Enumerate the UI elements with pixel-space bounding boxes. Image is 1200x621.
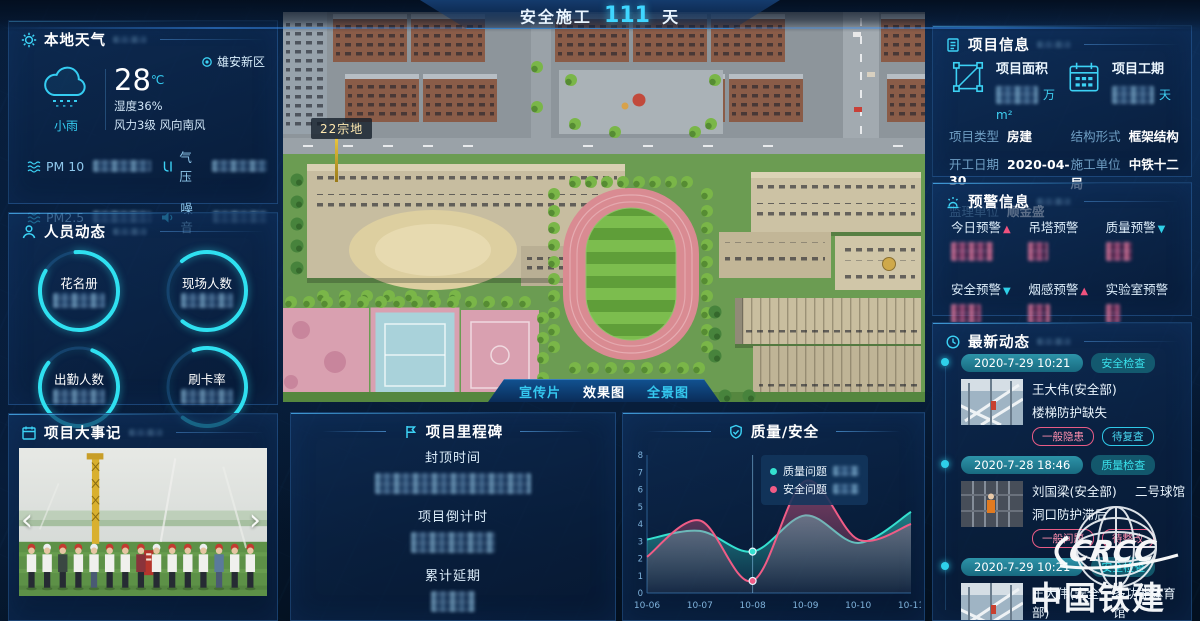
panel-title: 质量/安全	[751, 421, 819, 442]
header-decoration	[1037, 41, 1071, 48]
view-tabbar: 宣传片 效果图 全景图	[488, 379, 720, 402]
blurred-value	[1028, 304, 1050, 323]
blurred-value	[431, 591, 475, 612]
blurred-value	[951, 304, 981, 323]
trend-up-icon: ▲	[1080, 286, 1088, 297]
milestone-photo: ‹ ›	[19, 448, 267, 596]
blurred-value	[411, 532, 495, 553]
aerial-render	[283, 12, 925, 402]
safe-days-count: 111	[604, 3, 650, 28]
stat-project-area: 项目面积 万m²	[949, 58, 1065, 123]
svg-text:10-11: 10-11	[898, 601, 921, 611]
calendar-icon	[1065, 58, 1103, 100]
entry-issue: 楼梯防护缺失	[1032, 402, 1187, 421]
entry-person: 刘国梁(安全部)	[1032, 481, 1117, 500]
header-decoration	[129, 429, 163, 436]
blurred-value	[1106, 242, 1132, 261]
milestone-panel: 项目里程碑 封顶时间 项目倒计时 累计延期	[290, 412, 616, 621]
alert-smoke: 烟感预警▲	[1028, 279, 1105, 323]
dashboard: 安全施工 111 天 本地天气 雄安新区	[0, 0, 1200, 621]
feed-entry[interactable]: 2020-7-29 10:21 安全检查 王大伟(安全部)多功能体育馆 楼梯防护…	[933, 557, 1187, 620]
header-decoration	[1037, 198, 1071, 205]
personnel-panel: 人员动态 花名册 现场人数 出勤人数 刷卡率	[8, 212, 278, 405]
wind: 风力3级 风向南风	[114, 117, 205, 133]
entry-place: 多功能体育馆	[1113, 583, 1185, 620]
entry-photo	[961, 583, 1023, 620]
rain-cloud-icon	[37, 65, 95, 111]
svg-text:10-06: 10-06	[634, 601, 660, 611]
svg-text:3: 3	[638, 537, 643, 547]
timeline-dot-icon	[941, 460, 949, 468]
temperature: 28℃	[114, 65, 205, 95]
quality-safety-panel: 质量/安全 01234567810-0610-0710-0810-0910-10…	[622, 412, 925, 621]
alert-quality: 质量预警▼	[1106, 217, 1183, 261]
blurred-value	[181, 389, 233, 404]
tab-promo-video[interactable]: 宣传片	[519, 382, 561, 401]
svg-text:10-08: 10-08	[740, 601, 766, 611]
header-decoration	[113, 36, 147, 43]
blurred-value	[1112, 86, 1154, 104]
milestone-delay: 累计延期	[291, 565, 615, 612]
shield-check-icon	[728, 424, 744, 440]
panel-title: 项目里程碑	[426, 421, 504, 442]
project-info-panel: 项目信息 项目面积 万m² 项目工期 天	[932, 25, 1192, 177]
panel-title: 项目大事记	[44, 422, 122, 443]
entry-datetime: 2020-7-29 10:21	[961, 354, 1083, 372]
alert-crane: 吊塔预警	[1028, 217, 1105, 261]
status-tag: 待复查	[1102, 427, 1154, 446]
panel-title: 本地天气	[44, 29, 106, 50]
blurred-value	[53, 293, 105, 308]
weather-panel: 本地天气 雄安新区 小雨 28℃	[8, 20, 278, 204]
blurred-value	[181, 293, 233, 308]
person-icon	[21, 224, 37, 240]
alert-today: 今日预警▲	[951, 217, 1028, 261]
entry-issue: 洞口防护滞后	[1032, 504, 1187, 523]
tab-panorama[interactable]: 全景图	[647, 382, 689, 401]
svg-text:8: 8	[638, 451, 643, 461]
weather-condition: 小雨	[27, 65, 105, 134]
safety-series-label: 安全问题	[783, 481, 827, 497]
chart-tooltip: 质量问题 安全问题	[761, 455, 868, 505]
plot-marker[interactable]: 22宗地	[311, 118, 372, 139]
quality-series-label: 质量问题	[783, 463, 827, 479]
entry-datetime: 2020-7-29 10:21	[961, 558, 1083, 576]
entry-datetime: 2020-7-28 18:46	[961, 456, 1083, 474]
stat-project-duration: 项目工期 天	[1065, 58, 1181, 123]
status-tag: 待整改	[1102, 529, 1154, 548]
header-decoration	[113, 228, 147, 235]
svg-text:6: 6	[638, 486, 643, 496]
title-prefix: 安全施工	[520, 8, 592, 27]
events-panel: 项目大事记	[8, 413, 278, 621]
svg-text:10-07: 10-07	[687, 601, 713, 611]
header-decoration	[1037, 338, 1071, 345]
flag-icon	[403, 424, 419, 440]
svg-text:7: 7	[638, 468, 643, 478]
blurred-value	[93, 160, 151, 172]
tab-render-view[interactable]: 效果图	[583, 382, 625, 401]
entry-photo	[961, 379, 1023, 425]
entry-person: 王大伟(安全部)	[1032, 379, 1117, 398]
hazard-tag: 一般隐患	[1032, 427, 1094, 446]
svg-text:10-09: 10-09	[792, 601, 818, 611]
ring-onsite: 现场人数	[161, 245, 253, 337]
safety-legend-dot	[770, 486, 777, 493]
pressure-icon	[161, 160, 174, 173]
blurred-value	[212, 160, 267, 172]
trend-up-icon: ▲	[1003, 224, 1011, 235]
blurred-value	[375, 473, 531, 494]
ring-roster: 花名册	[33, 245, 125, 337]
alert-lab: 实验室预警	[1106, 279, 1183, 323]
sun-icon	[21, 32, 37, 48]
carousel-prev-button[interactable]: ‹	[21, 511, 33, 531]
entry-category-badge: 安全检查	[1091, 353, 1155, 373]
document-icon	[945, 37, 961, 53]
quality-legend-dot	[770, 468, 777, 475]
feed-entry[interactable]: 2020-7-29 10:21 安全检查 王大伟(安全部) 楼梯防护缺失 一般隐…	[933, 353, 1187, 446]
blurred-value	[833, 484, 859, 494]
svg-text:5: 5	[638, 503, 643, 513]
blurred-value	[951, 242, 993, 261]
blurred-value	[53, 389, 105, 404]
hazard-tag: 一般问题	[1032, 529, 1094, 548]
site-3d-view[interactable]: 22宗地 宣传片 效果图 全景图	[283, 12, 925, 402]
alerts-panel: 预警信息 今日预警▲ 吊塔预警 质量预警▼ 安全预警▼ 烟感预警▲ 实验室预警	[932, 182, 1192, 316]
metric-pm10: PM 10	[27, 147, 161, 185]
group-people	[26, 544, 255, 591]
milestone-topping-time: 封顶时间	[291, 447, 615, 494]
entry-category-badge: 安全检查	[1091, 557, 1155, 577]
trend-down-icon: ▼	[1158, 224, 1166, 235]
smog-icon	[27, 160, 41, 173]
panel-title: 预警信息	[968, 191, 1030, 212]
carousel-next-button[interactable]: ›	[249, 511, 261, 531]
feed-panel: 最新动态 2020-7-29 10:21 安全检查 王大伟(安全部) 楼梯	[932, 322, 1192, 621]
vector-square-icon	[949, 58, 987, 100]
alert-safety: 安全预警▼	[951, 279, 1028, 323]
milestone-countdown: 项目倒计时	[291, 506, 615, 553]
entry-place: 二号球馆	[1135, 481, 1185, 500]
blurred-value	[1106, 304, 1120, 323]
svg-text:2: 2	[638, 555, 643, 565]
row-structure-type: 结构形式框架结构	[1071, 126, 1183, 145]
panel-title: 人员动态	[44, 221, 106, 242]
clock-icon	[945, 334, 961, 350]
blurred-value	[996, 86, 1038, 104]
panel-title: 项目信息	[968, 34, 1030, 55]
page-title: 安全施工 111 天	[0, 3, 1200, 28]
blurred-value	[833, 466, 859, 476]
svg-text:10-10: 10-10	[845, 601, 871, 611]
row-project-type: 项目类型房建	[949, 126, 1071, 145]
entry-category-badge: 质量检查	[1091, 455, 1155, 475]
title-suffix: 天	[662, 8, 680, 27]
condition-label: 小雨	[27, 117, 105, 134]
blurred-value	[1028, 242, 1048, 261]
timeline-dot-icon	[941, 562, 949, 570]
plot-marker-pole	[335, 138, 338, 182]
timeline-dot-icon	[941, 358, 949, 366]
siren-icon	[945, 194, 961, 210]
svg-text:0: 0	[638, 589, 643, 599]
trend-down-icon: ▼	[1003, 286, 1011, 297]
humidity: 湿度36%	[114, 98, 205, 114]
entry-person: 王大伟(安全部)	[1032, 583, 1113, 620]
metric-pressure: 气压	[161, 147, 267, 185]
entry-photo	[961, 481, 1023, 527]
calendar-note-icon	[21, 425, 37, 441]
svg-text:1: 1	[638, 572, 643, 582]
panel-title: 最新动态	[968, 331, 1030, 352]
duration-unit: 天	[1159, 88, 1171, 102]
svg-text:4: 4	[638, 520, 643, 530]
feed-entry[interactable]: 2020-7-28 18:46 质量检查 刘国梁(安全部)二号球馆 洞口防护滞后…	[933, 455, 1187, 548]
